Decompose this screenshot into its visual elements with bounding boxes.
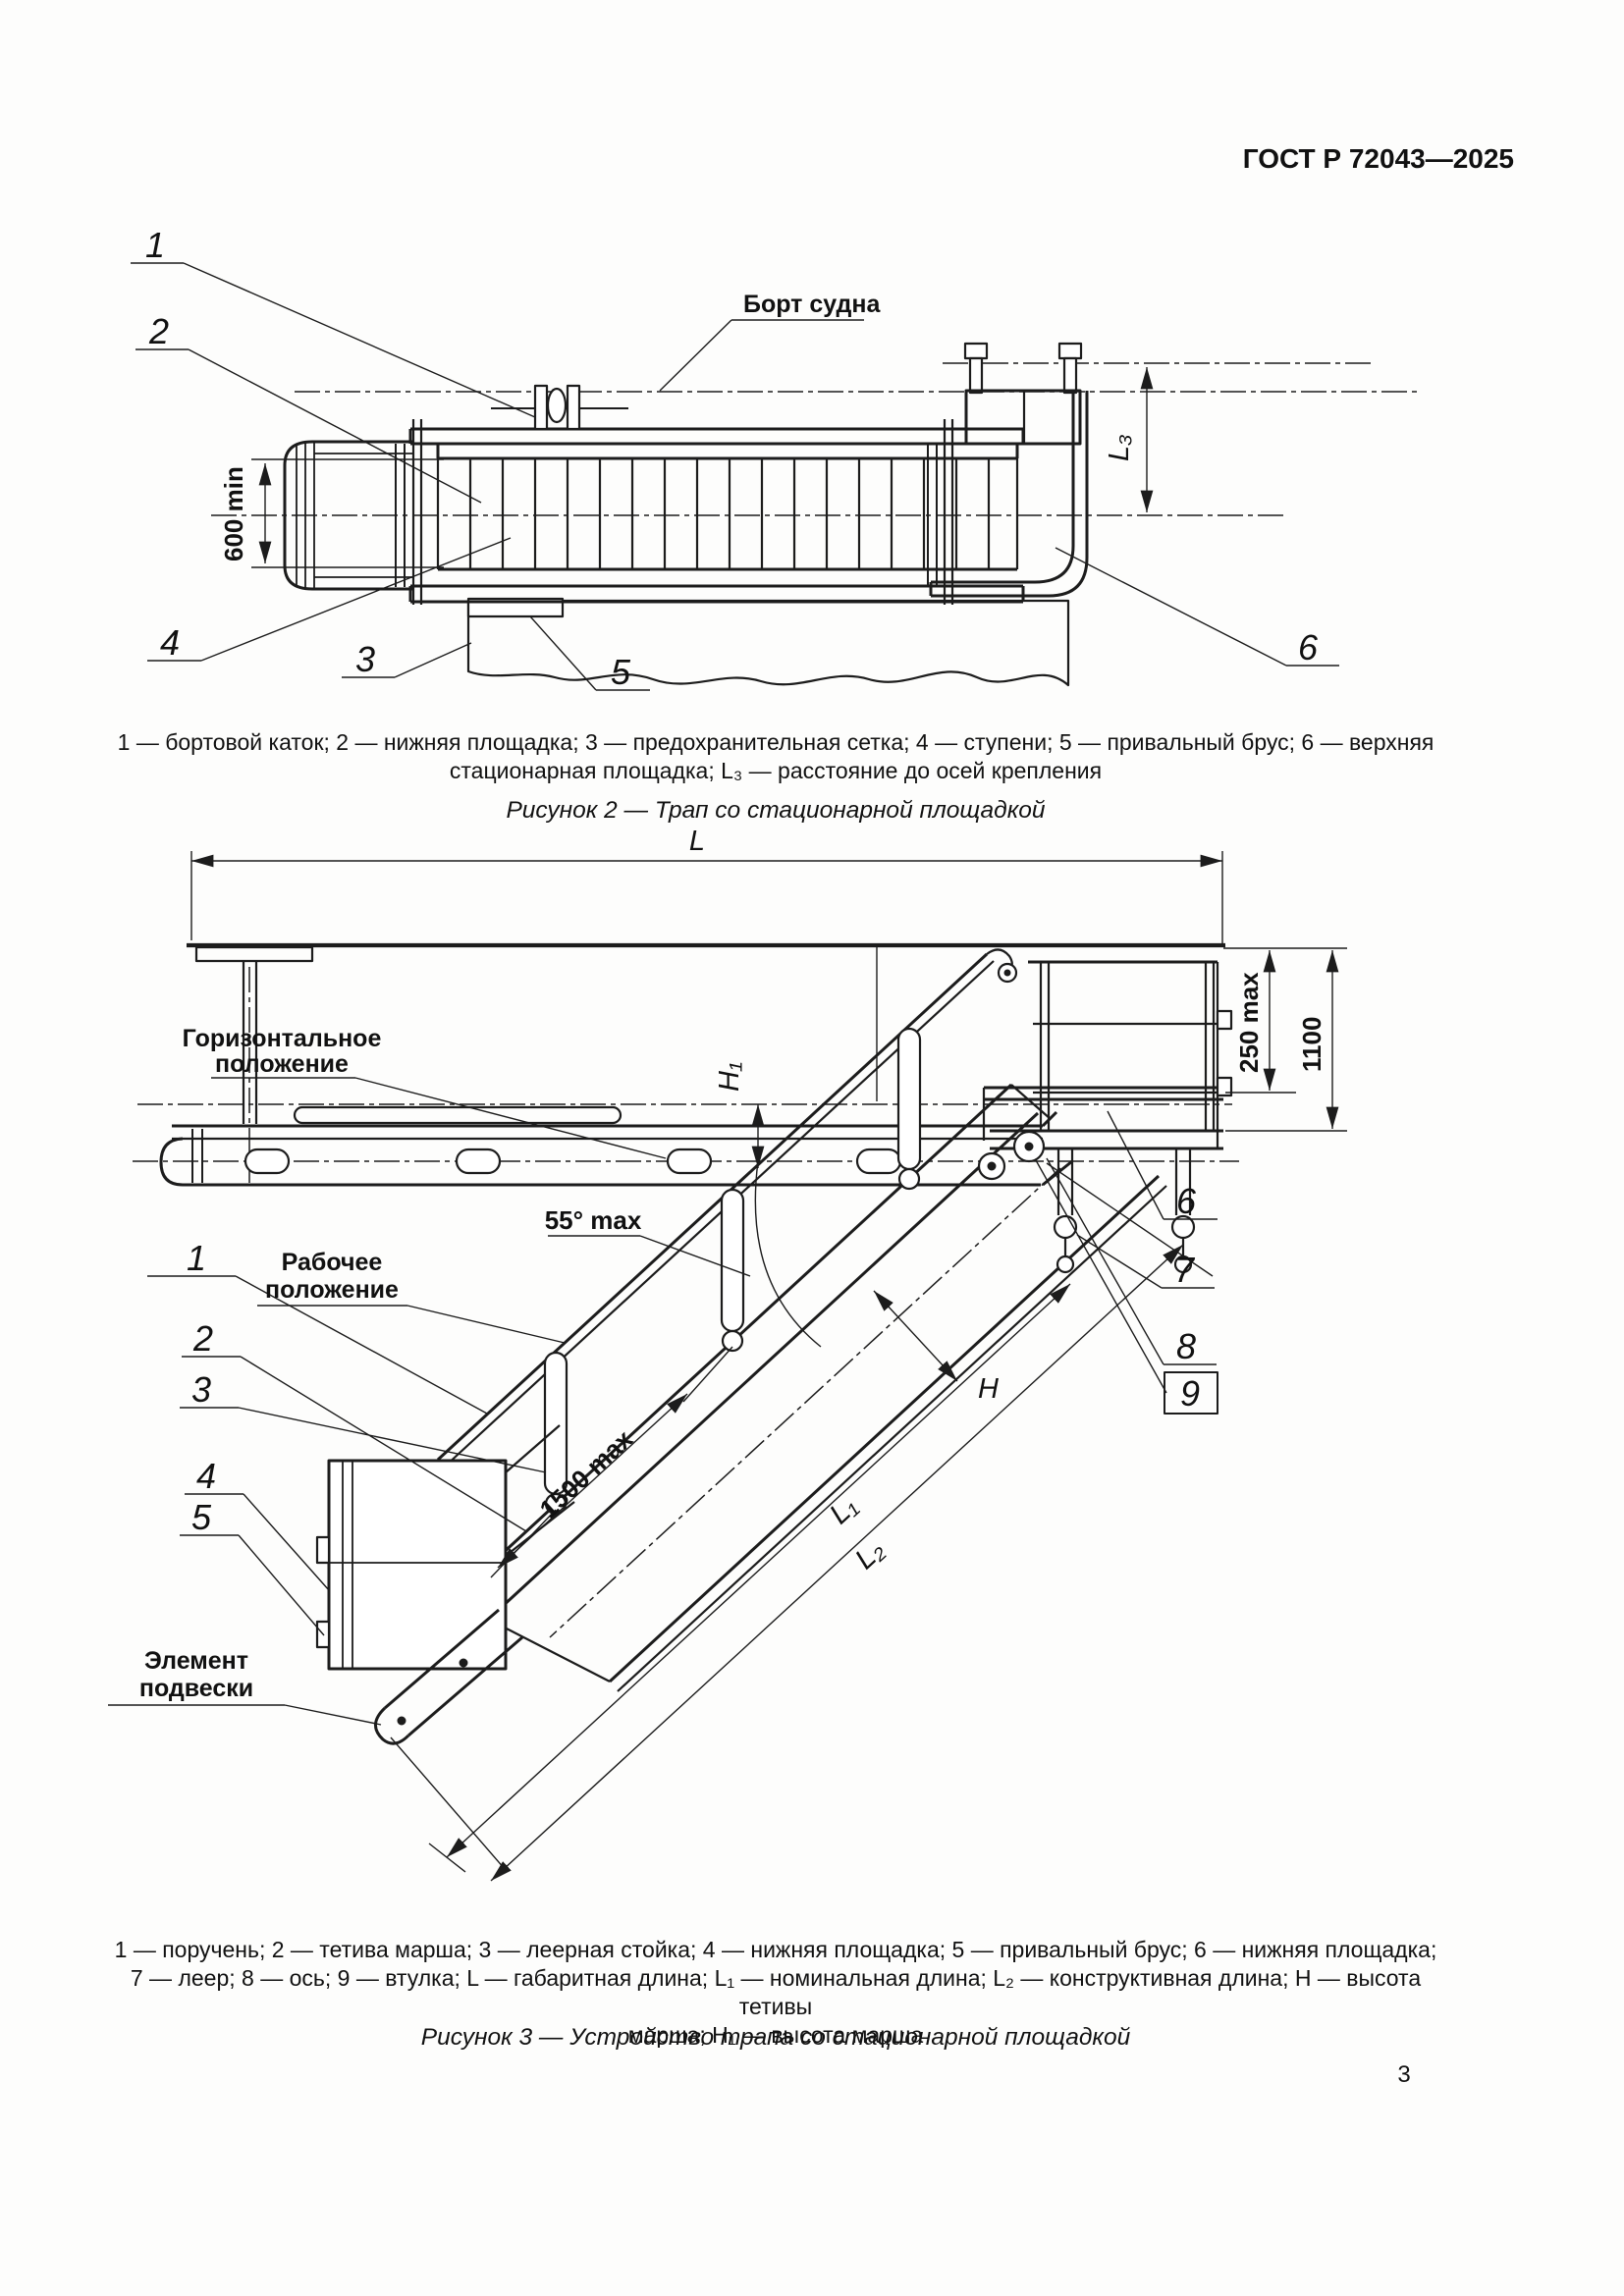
dim-250max-label: 250 max [1234,972,1264,1073]
centerlines [211,363,1419,515]
suspension-element-label-1: Элемент [144,1647,248,1675]
balusters [1058,1148,1190,1256]
figure2-legend-line1: 1 — бортовой каток; 2 — нижняя площадка;… [93,728,1458,757]
angle-arc [755,1161,821,1347]
working-gangway [438,949,1166,1691]
walkway-far-edge [610,1176,1159,1682]
dim-L2-label: L₂ [849,1534,891,1575]
angle-label: 55° max [545,1205,642,1235]
railing-posts [1041,962,1218,1148]
horizontal-position-label-2: положение [215,1050,349,1078]
page-number: 3 [1375,2061,1434,2089]
rail-stanchion [898,1029,920,1169]
callout-4: 4 [160,622,180,663]
callout-6: 6 [1176,1181,1197,1221]
rail-stanchion [545,1353,567,1494]
dim-L2 [491,1245,1183,1881]
figure2-legend-line2: стационарная площадка; L₃ — расстояние д… [93,757,1458,785]
figure2-legend: 1 — бортовой каток; 2 — нижняя площадка;… [93,728,1458,785]
dim-H [874,1291,957,1381]
callout-3: 3 [355,639,375,679]
working-position-label-2: положение [265,1276,399,1304]
roller-slot [668,1149,711,1173]
dim-H1-label: H₁ [714,1062,745,1092]
dim-H-label: H [978,1373,999,1405]
frame-posts [413,419,952,605]
leader-lines [131,263,1339,690]
fender-cleat [317,1537,329,1563]
figure3-legend-line1: 1 — поручень; 2 — тетива марша; 3 — леер… [93,1936,1458,1964]
callout-7: 7 [1174,1250,1196,1290]
rail-stanchion [722,1190,743,1331]
callout-3: 3 [191,1369,211,1410]
dim-L3-label: L₃ [1104,434,1135,461]
document-page: ГОСТ Р 72043—2025 [0,0,1624,2296]
callout-2: 2 [148,311,169,351]
callout-8: 8 [1176,1326,1196,1366]
suspension-element-label-2: подвески [139,1675,253,1702]
side-roller [548,389,566,422]
top-flange [410,429,1023,458]
deck-t-bar [196,947,312,961]
roller-slot [457,1149,500,1173]
callout-1: 1 [187,1238,206,1278]
figure2-title: Рисунок 2 — Трап со стационарной площадк… [93,797,1458,825]
working-position-label-1: Рабочее [282,1249,383,1276]
callout-5: 5 [611,652,631,692]
dimension-lines [191,851,1347,1881]
dim-1100-label: 1100 [1297,1017,1326,1072]
callout-1: 1 [145,225,165,265]
dimension-600min [251,459,444,567]
post-cleat [1218,1011,1231,1029]
callout-2: 2 [192,1318,213,1359]
ladder-frame [438,458,1017,569]
callout-6: 6 [1298,627,1319,667]
ship-side-label: Борт судна [743,291,882,318]
gangway-body [396,419,1023,605]
roller-slot [245,1149,289,1173]
figure3-drawing: L Горизонтальное положение H₁ 55° max Ра… [88,825,1551,1944]
railing-rails [1033,1024,1218,1093]
horizontal-position-label-1: Горизонтальное [183,1025,382,1052]
figure2-drawing: 1 2 4 3 5 6 Борт судна 600 min L₃ [98,211,1453,702]
platform-side-plate [931,391,1087,596]
figure3-legend-line2: 7 — леер; 8 — ось; 9 — втулка; L — габар… [93,1964,1458,2021]
callout-5: 5 [191,1497,212,1537]
leader-lines [108,1078,1218,1725]
callout-9: 9 [1180,1373,1200,1414]
callout-4: 4 [196,1456,216,1496]
figure3-title: Рисунок 3 — Устройство трапа со стациона… [93,2024,1458,2052]
folded-handrail [295,1107,621,1123]
upper-stationary-platform [931,344,1087,596]
ladder-steps [438,458,1017,569]
roller-slot [857,1149,900,1173]
standard-number-header: ГОСТ Р 72043—2025 [93,143,1514,175]
dim-600min-label: 600 min [219,466,248,561]
safety-net [468,599,1068,685]
lower-platform-box [317,1425,574,1669]
stringer-band [462,1085,1038,1619]
dim-L-label: L [689,826,705,857]
